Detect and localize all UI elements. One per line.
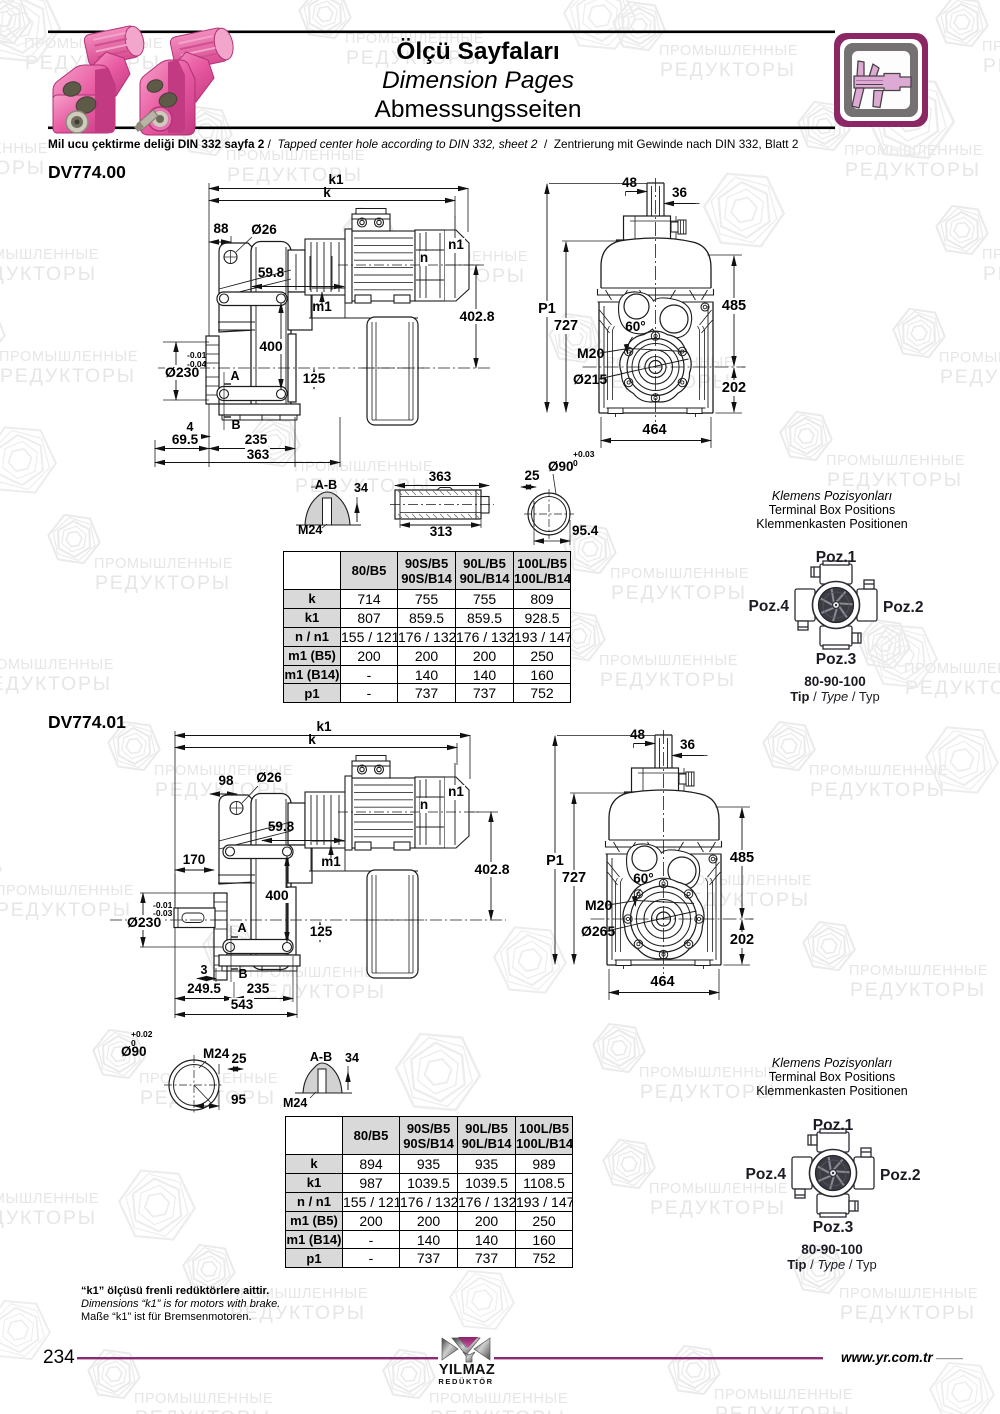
svg-text:YILMAZ: YILMAZ	[439, 1362, 495, 1378]
svg-text:95: 95	[231, 1092, 247, 1107]
svg-text:-0.03: -0.03	[153, 908, 173, 918]
svg-text:3: 3	[201, 963, 208, 977]
svg-text:B: B	[231, 418, 240, 432]
svg-text:235: 235	[245, 432, 268, 447]
svg-text:95.4: 95.4	[572, 523, 599, 538]
svg-text:P1: P1	[546, 853, 564, 869]
svg-text:A: A	[230, 369, 239, 383]
svg-text:B: B	[238, 967, 247, 981]
svg-text:A-B: A-B	[310, 1050, 332, 1064]
svg-text:25: 25	[524, 468, 540, 483]
svg-text:400: 400	[265, 887, 289, 903]
svg-text:k1: k1	[328, 172, 344, 187]
svg-text:n: n	[420, 250, 428, 265]
svg-text:0: 0	[573, 458, 578, 468]
svg-text:202: 202	[730, 932, 754, 948]
svg-text:k: k	[323, 185, 331, 200]
svg-text:REDÜKTÖR: REDÜKTÖR	[438, 1377, 493, 1386]
svg-text:485: 485	[722, 298, 746, 314]
svg-text:235: 235	[247, 981, 270, 996]
svg-text:60°: 60°	[633, 871, 653, 886]
svg-text:363: 363	[247, 447, 270, 462]
svg-text:Ø265: Ø265	[581, 923, 615, 939]
svg-text:98: 98	[218, 773, 234, 788]
svg-text:363: 363	[429, 469, 452, 484]
svg-text:k: k	[308, 732, 316, 747]
svg-text:A: A	[237, 921, 246, 935]
svg-text:M24: M24	[298, 523, 322, 537]
svg-text:48: 48	[622, 175, 638, 190]
svg-text:48: 48	[630, 727, 646, 742]
svg-text:69.5: 69.5	[172, 432, 199, 447]
svg-text:125: 125	[310, 924, 333, 939]
svg-text:402.8: 402.8	[474, 861, 509, 877]
svg-text:59.8: 59.8	[268, 819, 295, 834]
svg-text:170: 170	[183, 852, 206, 867]
svg-text:34: 34	[354, 481, 368, 495]
svg-text:464: 464	[642, 422, 666, 438]
svg-text:A-B: A-B	[315, 478, 337, 492]
svg-text:34: 34	[345, 1051, 359, 1065]
svg-text:n: n	[420, 797, 428, 812]
svg-text:36: 36	[672, 185, 688, 200]
svg-text:400: 400	[259, 338, 283, 354]
svg-text:125: 125	[303, 371, 326, 386]
svg-text:n1: n1	[448, 237, 464, 252]
svg-text:0: 0	[131, 1038, 136, 1048]
svg-text:25: 25	[231, 1051, 247, 1066]
svg-text:36: 36	[680, 737, 696, 752]
svg-text:k1: k1	[316, 719, 332, 734]
svg-text:-0.04: -0.04	[187, 359, 207, 369]
svg-text:485: 485	[730, 850, 754, 866]
svg-text:n1: n1	[448, 784, 464, 799]
svg-text:Ø215: Ø215	[573, 371, 607, 387]
svg-text:727: 727	[554, 318, 578, 334]
svg-text:60°: 60°	[625, 319, 645, 334]
svg-text:Ø90: Ø90	[548, 459, 574, 474]
svg-text:543: 543	[231, 997, 254, 1012]
svg-text:M24: M24	[283, 1096, 307, 1110]
svg-text:Ø26: Ø26	[256, 770, 282, 785]
svg-text:88: 88	[213, 221, 229, 236]
svg-text:249.5: 249.5	[187, 981, 221, 996]
svg-text:P1: P1	[538, 301, 556, 317]
svg-text:313: 313	[430, 524, 453, 539]
svg-text:Ø26: Ø26	[251, 222, 277, 237]
svg-text:402.8: 402.8	[459, 308, 494, 324]
svg-text:727: 727	[562, 870, 586, 886]
svg-text:59.8: 59.8	[258, 265, 285, 280]
svg-text:202: 202	[722, 380, 746, 396]
svg-text:464: 464	[650, 974, 674, 990]
svg-text:M24: M24	[203, 1046, 230, 1061]
